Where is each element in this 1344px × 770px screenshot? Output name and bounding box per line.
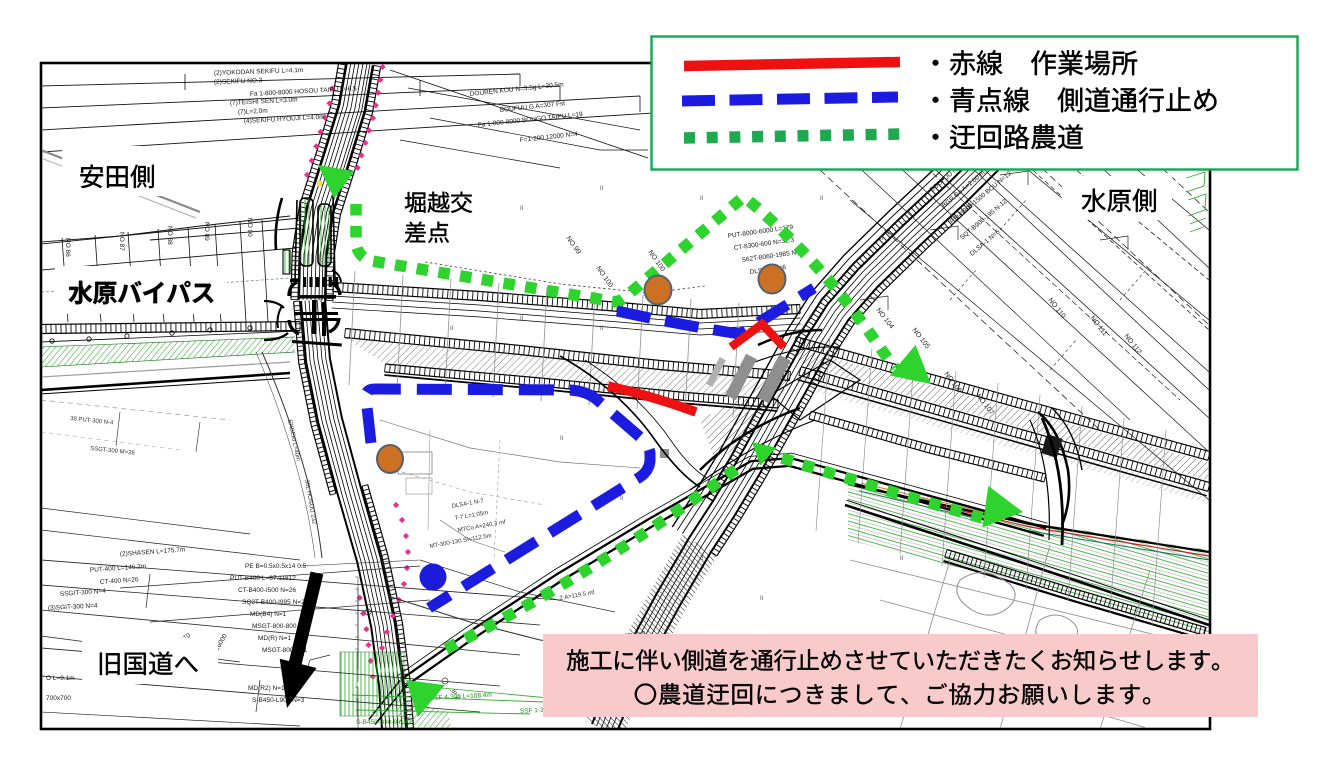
- svg-text:CT-B400-I500 N=26: CT-B400-I500 N=26: [238, 587, 296, 594]
- svg-text:II: II: [520, 316, 524, 322]
- svg-text:NO 90: NO 90: [246, 218, 253, 237]
- svg-text:II: II: [560, 436, 564, 442]
- svg-text:II: II: [820, 196, 824, 202]
- svg-text:II: II: [700, 196, 704, 202]
- svg-text:PE B=0.5x0.5x14 0.5: PE B=0.5x0.5x14 0.5: [245, 563, 307, 570]
- svg-text:NO 87: NO 87: [118, 232, 125, 251]
- svg-text:NO 89: NO 89: [203, 222, 210, 241]
- svg-text:II: II: [620, 496, 624, 502]
- svg-text:S-B450-L900 N=3: S-B450-L900 N=3: [252, 697, 305, 704]
- svg-text:MD(R) N=1: MD(R) N=1: [258, 635, 291, 642]
- svg-text:II: II: [600, 186, 604, 192]
- svg-text:SQ2T-B400-I995 N=2: SQ2T-B400-I995 N=2: [242, 599, 305, 606]
- svg-text:II: II: [600, 326, 604, 332]
- svg-text:II: II: [450, 326, 454, 332]
- svg-text:NO 86: NO 86: [64, 238, 71, 257]
- svg-text:NO 88: NO 88: [166, 226, 173, 245]
- svg-text:II: II: [700, 556, 704, 562]
- svg-text:II: II: [880, 236, 884, 242]
- svg-text:O L=9.1m: O L=9.1m: [46, 675, 75, 682]
- svg-text:II: II: [520, 206, 524, 212]
- svg-text:MD(B4) N=1: MD(B4) N=1: [250, 611, 287, 618]
- svg-text:700x700: 700x700: [46, 695, 71, 702]
- svg-text:II: II: [760, 596, 764, 602]
- svg-text:MD(R2) N=1: MD(R2) N=1: [248, 685, 285, 692]
- svg-text:PUT-B400 L=67.11812: PUT-B400 L=67.11812: [230, 575, 296, 582]
- svg-text:S-B450-B30-9 N=2: S-B450-B30-9 N=2: [356, 719, 411, 726]
- svg-text:II: II: [900, 556, 904, 562]
